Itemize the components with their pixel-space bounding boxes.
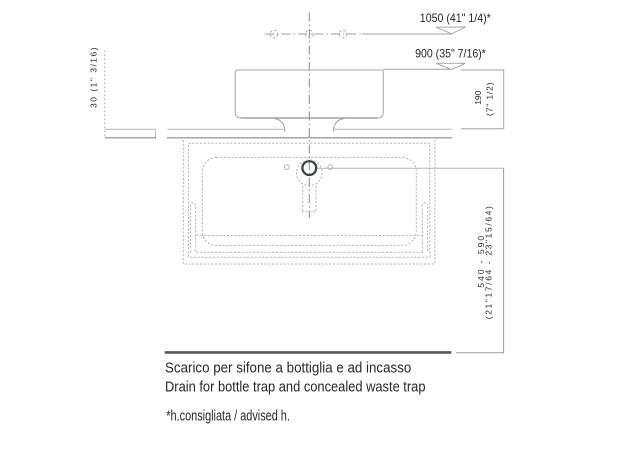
svg-text:*h.consigliata / advised h.: *h.consigliata / advised h. [166, 409, 290, 425]
svg-text:1050 (41" 1/4)*: 1050 (41" 1/4)* [420, 12, 491, 25]
svg-text:Drain for bottle trap and conc: Drain for bottle trap and concealed wast… [165, 378, 426, 395]
svg-text:190: 190 [473, 90, 483, 104]
svg-text:(7" 1/2): (7" 1/2) [485, 82, 495, 116]
svg-text:Scarico per sifone a bottiglia: Scarico per sifone a bottiglia e ad inca… [165, 359, 411, 376]
svg-text:(21"17/64 - 23"15/64): (21"17/64 - 23"15/64) [484, 206, 494, 319]
svg-text:30 (1" 3/16): 30 (1" 3/16) [88, 47, 98, 108]
svg-text:900 (35" 7/16)*: 900 (35" 7/16)* [415, 48, 486, 61]
